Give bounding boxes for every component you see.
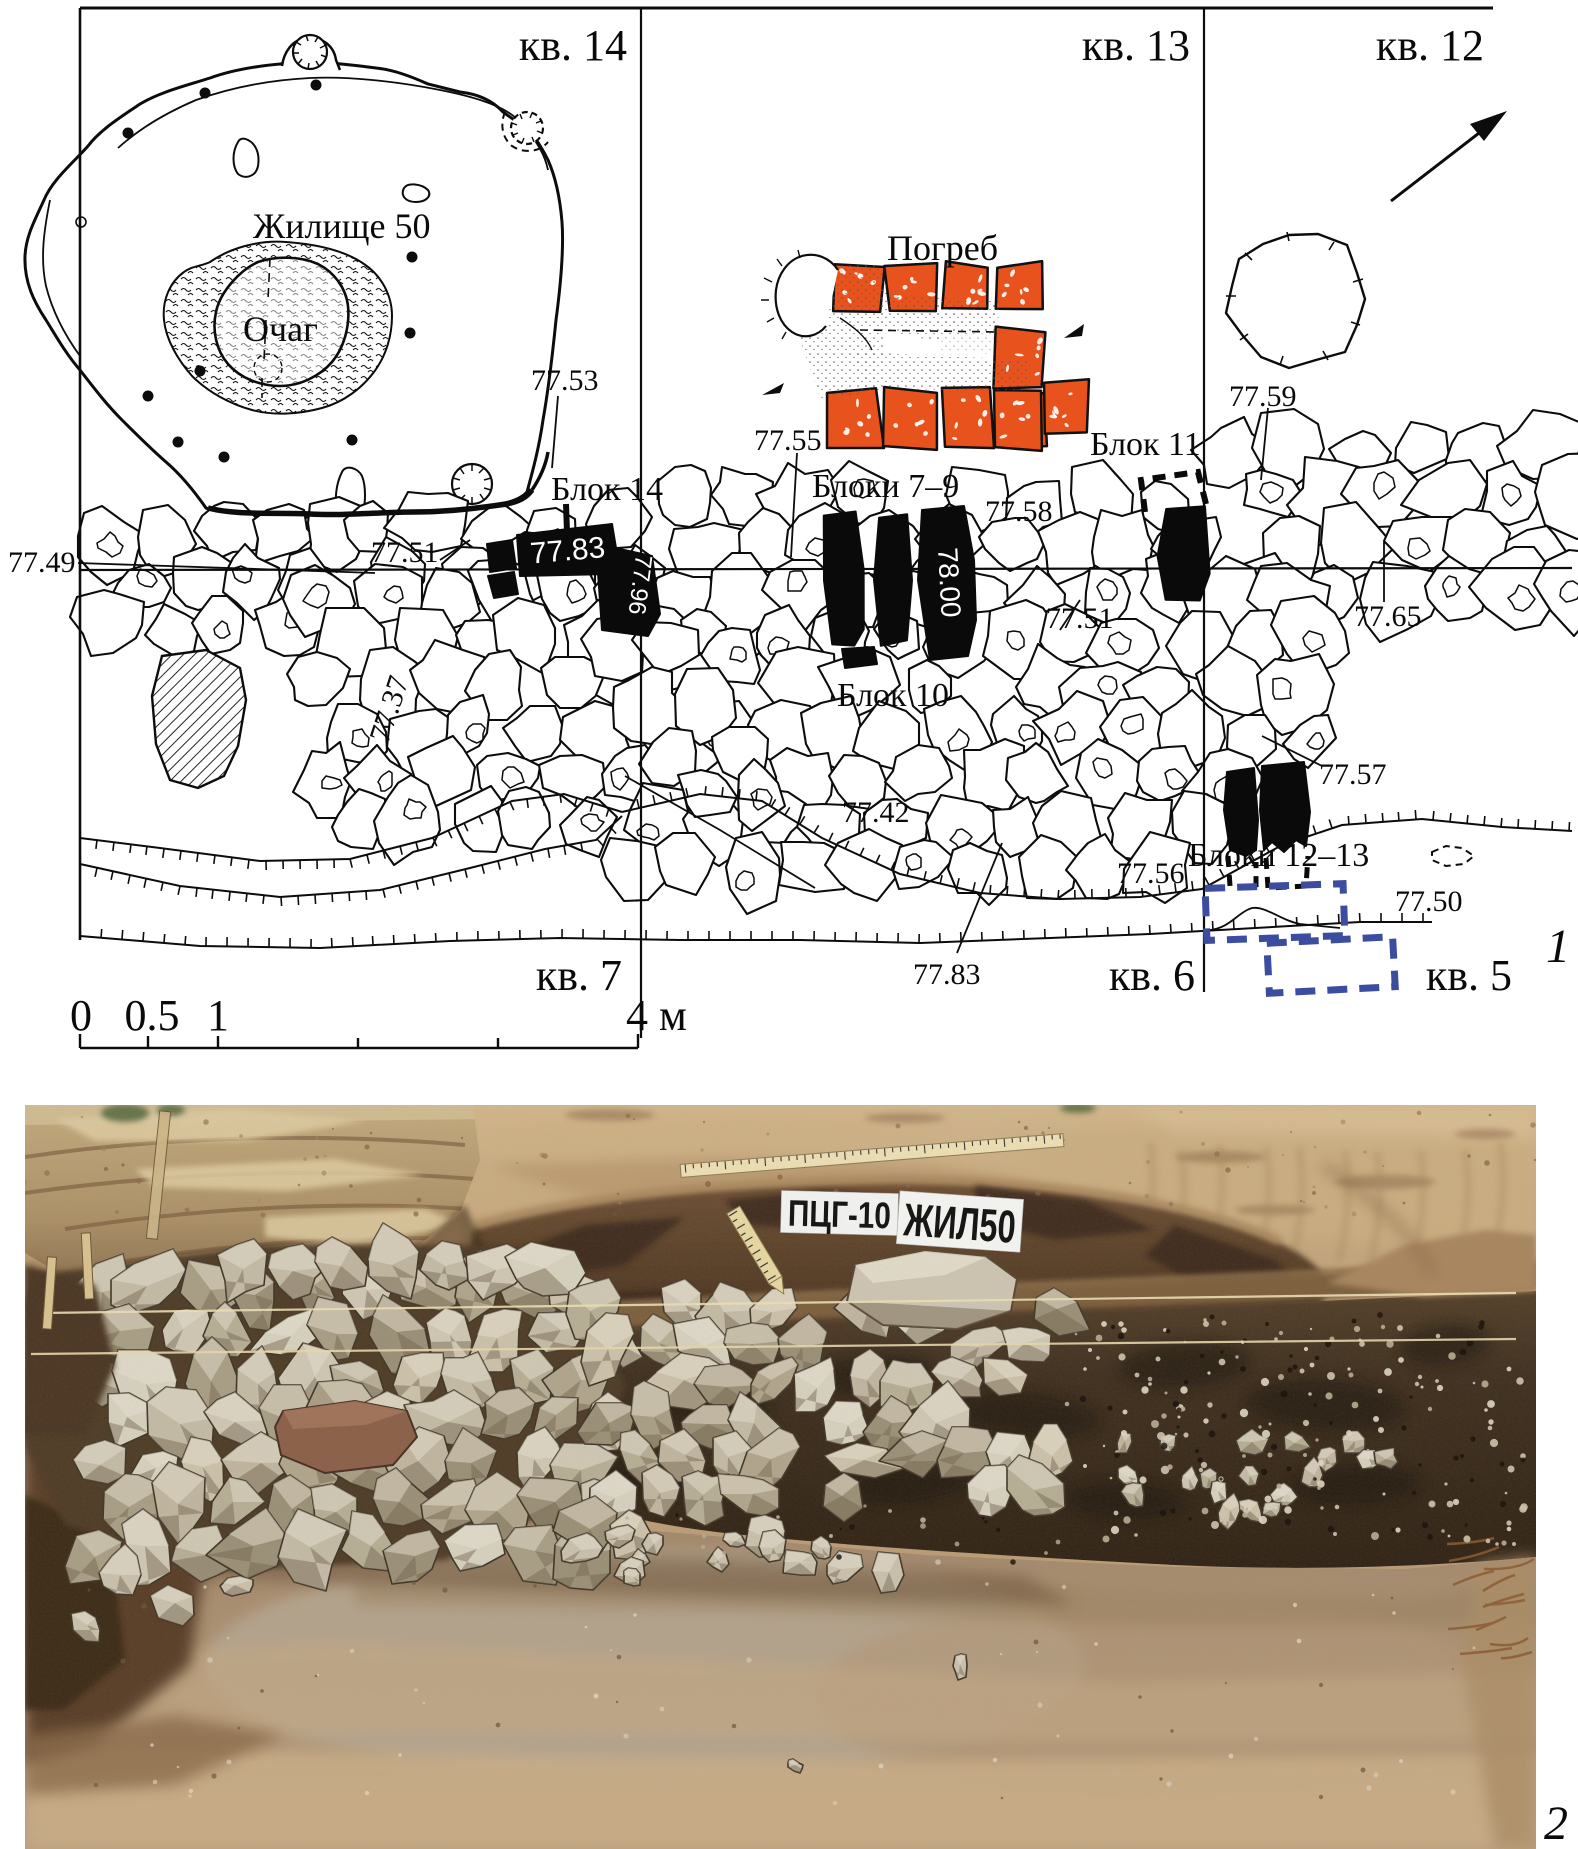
svg-text:Жилище 50: Жилище 50	[253, 206, 430, 246]
svg-text:4 м: 4 м	[626, 991, 687, 1040]
svg-text:0: 0	[70, 991, 92, 1040]
svg-text:кв. 7: кв. 7	[536, 951, 622, 1000]
svg-text:1: 1	[207, 991, 229, 1040]
svg-text:Погреб: Погреб	[887, 228, 998, 268]
svg-text:кв. 12: кв. 12	[1376, 21, 1484, 70]
svg-text:77.53: 77.53	[531, 364, 599, 397]
svg-text:кв. 6: кв. 6	[1109, 951, 1195, 1000]
svg-text:77.51: 77.51	[371, 536, 439, 569]
svg-text:77.83: 77.83	[529, 531, 607, 570]
svg-text:78.00: 78.00	[932, 547, 967, 619]
svg-text:0.5: 0.5	[125, 991, 180, 1040]
svg-text:77.57: 77.57	[1319, 758, 1387, 791]
svg-text:Блок 10: Блок 10	[837, 677, 949, 714]
svg-text:77.42: 77.42	[842, 796, 910, 829]
svg-text:Блоки 7–9: Блоки 7–9	[812, 468, 959, 505]
svg-text:Блок 14: Блок 14	[551, 471, 663, 508]
svg-text:77.51: 77.51	[1046, 602, 1114, 635]
svg-text:Блок 11: Блок 11	[1090, 426, 1201, 463]
svg-text:77.83: 77.83	[913, 958, 981, 991]
svg-text:кв. 5: кв. 5	[1426, 951, 1512, 1000]
svg-text:кв. 14: кв. 14	[519, 21, 627, 70]
svg-text:77.59: 77.59	[1229, 380, 1297, 413]
svg-text:77.50: 77.50	[1395, 885, 1463, 918]
svg-text:77.55: 77.55	[754, 424, 822, 457]
svg-text:77.65: 77.65	[1354, 600, 1422, 633]
svg-text:77.49: 77.49	[8, 546, 76, 579]
svg-text:1: 1	[1546, 920, 1570, 973]
svg-text:Блоки 12–13: Блоки 12–13	[1188, 837, 1369, 874]
svg-text:Очаг: Очаг	[243, 309, 318, 349]
svg-text:кв. 13: кв. 13	[1082, 21, 1190, 70]
svg-text:77.58: 77.58	[985, 495, 1053, 528]
svg-text:77.56: 77.56	[1117, 857, 1185, 890]
